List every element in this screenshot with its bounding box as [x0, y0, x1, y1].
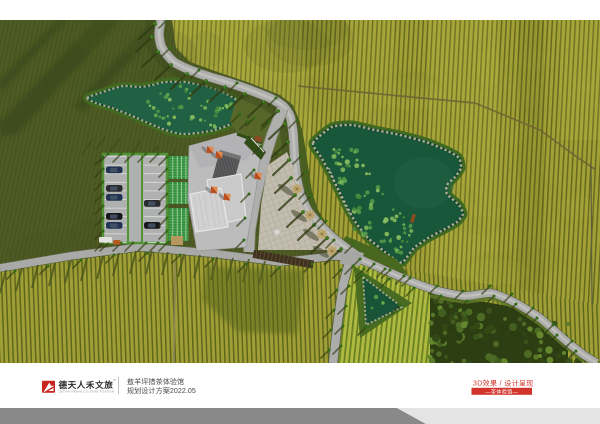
svg-text:规划设计方案2022.05: 规划设计方案2022.05: [127, 386, 196, 395]
svg-text:3D效果 / 设计呈现: 3D效果 / 设计呈现: [473, 379, 534, 388]
svg-text:德天人禾文旅: 德天人禾文旅: [59, 379, 114, 390]
svg-text:—茶体验馆—: —茶体验馆—: [485, 387, 518, 395]
svg-text:DETIAN RENHE CULTURE TOURISM: DETIAN RENHE CULTURE TOURISM: [59, 390, 115, 394]
svg-text:™: ™: [113, 379, 116, 383]
svg-text:敖羊坪措茶体验馆: 敖羊坪措茶体验馆: [127, 377, 184, 386]
